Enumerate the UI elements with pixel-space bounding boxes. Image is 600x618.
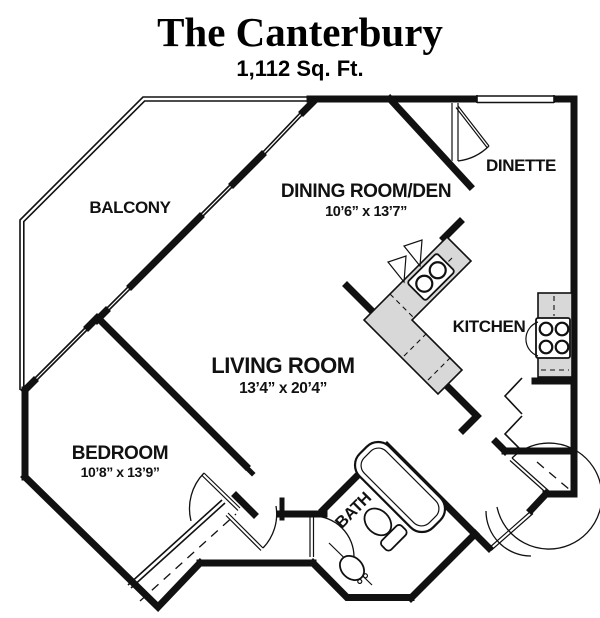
bathtub xyxy=(348,435,451,538)
bifold-doors xyxy=(505,378,522,451)
dining-label: DINING ROOM/DEN xyxy=(281,181,451,202)
living-label: LIVING ROOM xyxy=(211,353,355,378)
dinette-label: DINETTE xyxy=(486,156,556,175)
bedroom-dimensions: 10’8” x 13’9” xyxy=(81,464,160,480)
bath-sink xyxy=(329,543,372,587)
entry-closet-rod xyxy=(537,462,570,490)
title-block: The Canterbury 1,112 Sq. Ft. xyxy=(157,9,443,81)
balcony-railing xyxy=(20,97,313,390)
bedroom-label: BEDROOM xyxy=(72,443,168,464)
dining-dimensions: 10’6” x 13’7” xyxy=(325,204,407,220)
entry-door xyxy=(486,511,533,556)
page-title: The Canterbury xyxy=(157,9,443,55)
square-footage: 1,112 Sq. Ft. xyxy=(236,56,363,81)
dinette-door xyxy=(451,103,489,161)
kitchen-counter xyxy=(364,237,471,394)
living-dimensions: 13’4” x 20’4” xyxy=(239,380,327,397)
stove xyxy=(526,318,570,358)
kitchen-fixtures xyxy=(364,237,572,394)
room-labels: BALCONY DINING ROOM/DEN 10’6” x 13’7” DI… xyxy=(72,156,556,532)
floorplan-drawing: The Canterbury 1,112 Sq. Ft. xyxy=(0,0,600,618)
kitchen-label: KITCHEN xyxy=(453,317,526,336)
floorplan-page: The Canterbury 1,112 Sq. Ft. xyxy=(0,0,600,618)
windows xyxy=(33,95,554,383)
balcony-label: BALCONY xyxy=(89,198,171,217)
